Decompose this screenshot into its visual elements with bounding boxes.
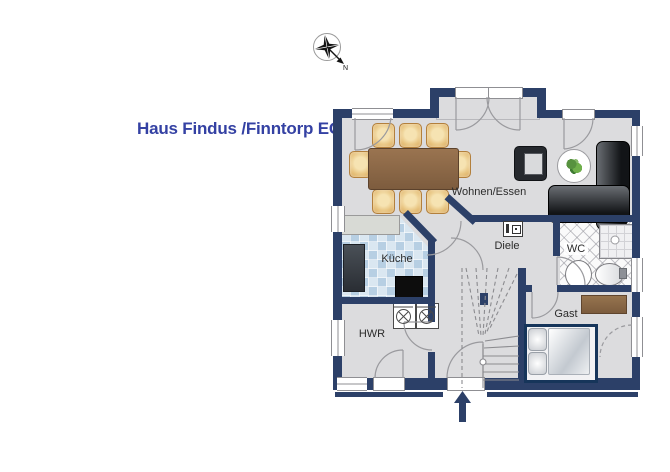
plant-table — [557, 149, 591, 183]
vent-shaft-duct — [512, 225, 521, 234]
bay-wall-right — [537, 88, 546, 118]
page-title: Haus Findus /Finntorp EG — [137, 119, 342, 139]
dining-chair — [426, 123, 449, 148]
window-gast — [631, 317, 643, 357]
compass-star — [314, 34, 340, 60]
wall-kitchen-hall — [428, 240, 435, 322]
shower — [599, 224, 634, 259]
window-hwr-bottom — [337, 377, 367, 391]
washing-machine — [393, 303, 416, 329]
room-label-wohnen-essen: Wohnen/Essen — [439, 186, 539, 198]
armchair — [514, 146, 547, 181]
floor-plan-page: Haus Findus /Finntorp EG N — [0, 0, 670, 472]
wall-hall-wc — [553, 222, 560, 256]
sideboard — [581, 295, 627, 314]
dining-chair — [399, 189, 422, 214]
room-label-diele: Diele — [484, 240, 530, 252]
wall-stub-stairs — [480, 293, 488, 305]
window-kitchen — [331, 206, 345, 232]
door-mullion — [488, 88, 489, 98]
room-label-wc: WC — [564, 243, 588, 255]
window-living-right — [631, 126, 643, 156]
wall-hwr-hall-lower — [428, 352, 435, 378]
exterior-paving-left — [335, 392, 443, 397]
wall-wc-gast — [557, 285, 640, 292]
window-wc — [631, 258, 643, 292]
wall-living-hall — [470, 215, 640, 222]
window-top-left — [352, 108, 393, 120]
duvet — [548, 328, 590, 375]
entrance-arrow-icon — [454, 391, 471, 422]
room-label-kueche: Küche — [374, 253, 420, 265]
dining-chair — [372, 189, 395, 214]
compass-north-label: N — [343, 65, 348, 71]
exterior-paving-right — [487, 392, 638, 397]
wall-gast-top-left — [526, 285, 532, 292]
vent-shaft — [503, 221, 523, 237]
dining-chair — [372, 123, 395, 148]
dining-chair — [399, 123, 422, 148]
armchair-seat — [524, 153, 543, 175]
entrance-door — [447, 377, 485, 391]
room-label-gast: Gast — [545, 308, 587, 320]
kitchen-counter — [341, 215, 400, 235]
terrace-door — [562, 109, 595, 120]
pillow — [528, 352, 547, 375]
compass-north-arrow — [337, 58, 345, 65]
faucet-icon — [619, 268, 627, 279]
bed — [524, 324, 598, 383]
refrigerator — [343, 244, 365, 292]
wall-kitchen-hwr — [333, 297, 428, 304]
vent-shaft-bar — [506, 224, 509, 233]
vent-dot — [515, 228, 517, 230]
hwr-exterior-door — [373, 377, 405, 391]
pillow — [528, 328, 547, 351]
bay-french-door — [455, 87, 523, 99]
room-label-hwr: HWR — [352, 328, 392, 340]
dining-table — [368, 148, 459, 190]
compass-icon: N — [303, 23, 351, 71]
window-hwr-left — [331, 320, 345, 356]
